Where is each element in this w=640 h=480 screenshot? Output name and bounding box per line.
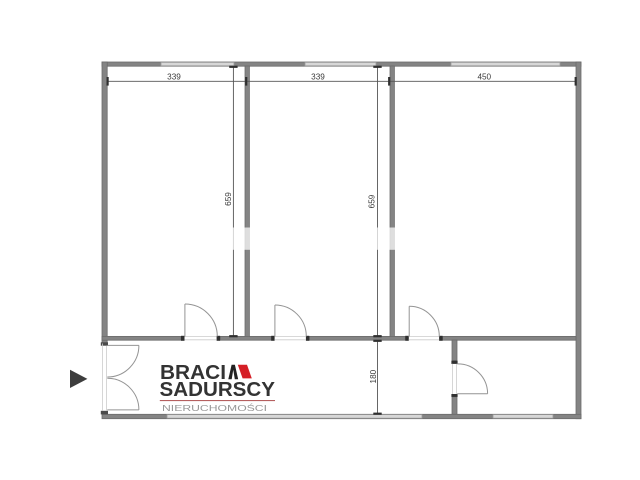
svg-text:339: 339 <box>167 73 181 82</box>
svg-text:450: 450 <box>477 73 491 82</box>
svg-text:659: 659 <box>368 194 377 208</box>
svg-text:SADURSCY: SADURSCY <box>160 378 276 401</box>
svg-text:180: 180 <box>369 369 378 383</box>
svg-text:659: 659 <box>224 192 233 206</box>
svg-text:NIERUCHOMOŚCI: NIERUCHOMOŚCI <box>162 404 267 413</box>
svg-text:339: 339 <box>311 73 325 82</box>
